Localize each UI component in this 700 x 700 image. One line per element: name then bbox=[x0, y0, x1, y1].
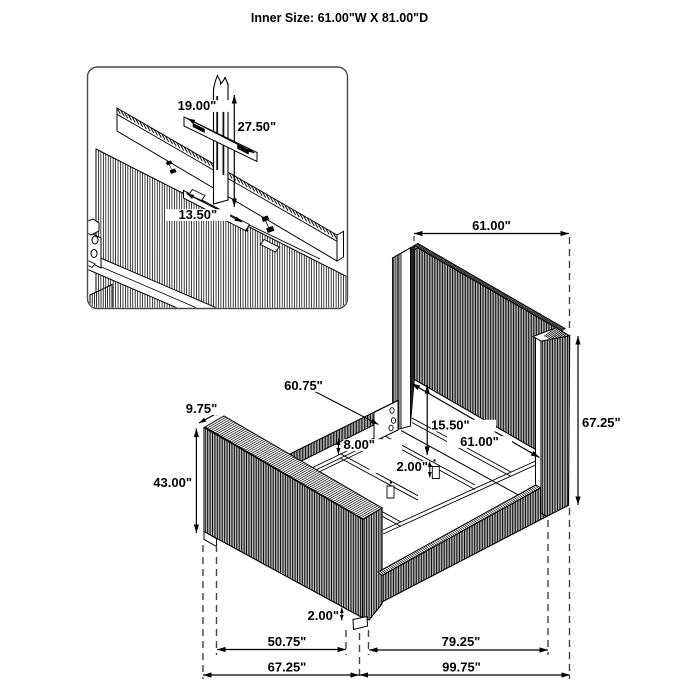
svg-text:2.00": 2.00" bbox=[397, 459, 428, 474]
svg-text:43.00": 43.00" bbox=[153, 475, 192, 490]
svg-text:15.50": 15.50" bbox=[431, 418, 470, 433]
svg-text:61.00": 61.00" bbox=[472, 218, 511, 233]
svg-text:67.25": 67.25" bbox=[582, 415, 621, 430]
svg-text:Inner Size: 61.00"W X 81.00"D: Inner Size: 61.00"W X 81.00"D bbox=[251, 11, 428, 25]
svg-text:61.00": 61.00" bbox=[460, 434, 499, 449]
svg-text:13.50": 13.50" bbox=[178, 207, 217, 222]
svg-text:19.00": 19.00" bbox=[178, 98, 217, 113]
svg-text:2.00": 2.00" bbox=[308, 608, 339, 623]
svg-text:79.25": 79.25" bbox=[442, 634, 481, 649]
svg-text:27.50": 27.50" bbox=[238, 119, 277, 134]
svg-text:50.75": 50.75" bbox=[268, 634, 307, 649]
svg-text:67.25": 67.25" bbox=[268, 660, 307, 675]
svg-text:60.75": 60.75" bbox=[284, 378, 323, 393]
svg-text:99.75": 99.75" bbox=[442, 660, 481, 675]
svg-text:8.00": 8.00" bbox=[344, 437, 375, 452]
svg-text:9.75": 9.75" bbox=[186, 401, 217, 416]
